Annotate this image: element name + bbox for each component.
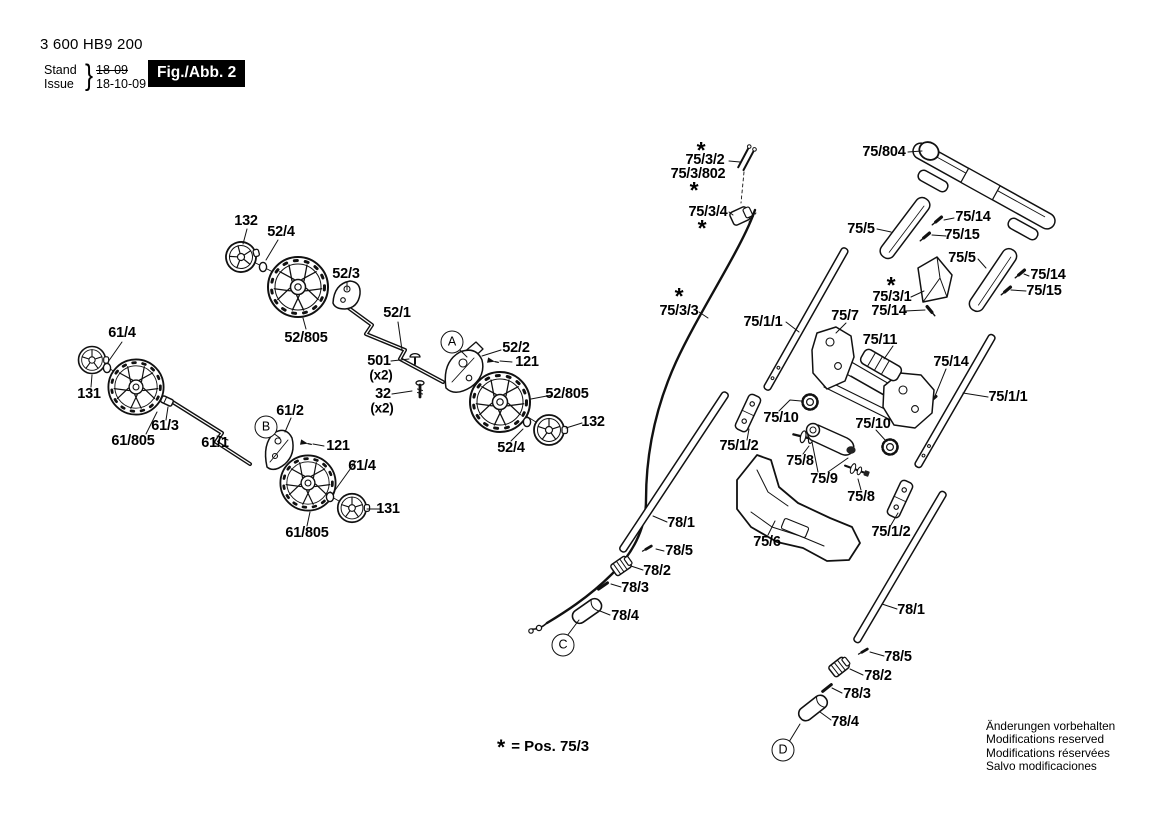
- notice-line-en: Modifications reserved: [986, 733, 1115, 746]
- screw-75-14-right: [1015, 270, 1024, 278]
- ring-61-4-left: [103, 363, 110, 372]
- footnote-text: = Pos. 75/3: [511, 738, 589, 755]
- lower-handle-75-6: [737, 455, 860, 561]
- wheel-61-805-left: [108, 359, 163, 414]
- grommet-501: [410, 354, 420, 364]
- sleeve-78-4-right: [796, 693, 830, 724]
- pin-78-3-right: [823, 685, 832, 692]
- screw-75-15-top: [920, 233, 929, 241]
- ring-61-4-bottom: [326, 492, 333, 501]
- tube-78-1-left: [619, 391, 730, 553]
- clip-75-1-2-left: [734, 393, 762, 433]
- diagram-artwork: [0, 0, 1169, 826]
- cone-75-3-1: [918, 257, 952, 302]
- footnote-star-legend: *= Pos. 75/3: [497, 736, 589, 760]
- console-75-7: [812, 327, 934, 428]
- pins-75-3-2: [737, 144, 757, 171]
- hubcap-131-bottom: [338, 494, 370, 523]
- clip-75-1-2-right: [886, 479, 914, 519]
- grip-75-5-right: [967, 246, 1020, 314]
- screw-121-a: [487, 357, 499, 365]
- screw-75-15-right: [1001, 287, 1010, 295]
- screw-32: [416, 381, 424, 397]
- bar-75-11: [859, 348, 903, 383]
- grip-75-5-left: [877, 195, 932, 262]
- knob-75-10-right: [883, 440, 898, 455]
- stand-label: Stand: [44, 63, 77, 77]
- issue-value: 18-10-09: [96, 77, 146, 91]
- bolt-75-8-bottom: [843, 461, 870, 479]
- star-icon: *: [497, 736, 505, 759]
- knob-75-10-left: [803, 395, 818, 410]
- document-part-number: 3 600 HB9 200: [40, 36, 270, 53]
- ring-52-4-right: [523, 417, 530, 426]
- stand-value: 18-09: [96, 63, 128, 77]
- nut-61-3: [160, 395, 174, 406]
- upper-handle-75-804: [910, 139, 1058, 242]
- ring-52-4-topleft: [259, 262, 266, 271]
- diagram-stage: 13252/452/352/80552/152/2121501(x2)32(x2…: [0, 0, 1169, 826]
- issue-block: Stand Issue } 18-09 18-10-09 Fig./Abb. 2: [40, 63, 270, 97]
- nut-78-2-right: [828, 655, 852, 678]
- screw-78-5-right: [858, 649, 867, 654]
- header-block: 3 600 HB9 200 Stand Issue } 18-09 18-10-…: [40, 36, 270, 97]
- screw-121-b: [300, 439, 312, 447]
- modifications-notice: Änderungen vorbehalten Modifications res…: [986, 720, 1115, 774]
- screw-75-14-mid: [927, 307, 935, 316]
- notice-line-de: Änderungen vorbehalten: [986, 720, 1115, 733]
- axle-52-1: [346, 306, 443, 382]
- wheel-61-805-bottom: [280, 455, 335, 510]
- figure-number-badge: Fig./Abb. 2: [148, 60, 245, 87]
- issue-label: Issue: [44, 77, 74, 91]
- wheel-52-805-top: [268, 257, 328, 317]
- sleeve-78-4-left: [570, 596, 604, 626]
- screw-78-5-left: [642, 546, 651, 551]
- hubcap-132-right: [534, 415, 568, 445]
- issue-brace: }: [85, 59, 93, 93]
- wheel-52-805-right: [470, 372, 530, 432]
- parts-diagram-page: 13252/452/352/80552/152/2121501(x2)32(x2…: [0, 0, 1169, 826]
- screw-75-14-top: [932, 217, 941, 225]
- dashed-line-pins: [741, 172, 744, 203]
- notice-line-es: Salvo modificaciones: [986, 760, 1115, 773]
- notice-line-fr: Modifications réservées: [986, 747, 1115, 760]
